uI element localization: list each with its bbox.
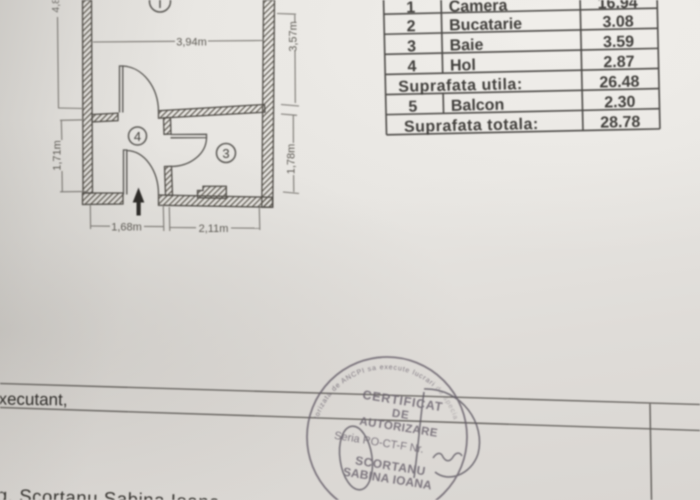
svg-text:1,71m: 1,71m <box>52 140 64 171</box>
svg-text:26.48: 26.48 <box>599 74 640 92</box>
svg-text:4: 4 <box>407 58 416 75</box>
svg-text:executant,: executant, <box>0 389 68 409</box>
svg-text:4,87m: 4,87m <box>50 0 62 13</box>
svg-text:Hol: Hol <box>450 57 476 75</box>
svg-text:28.78: 28.78 <box>600 114 641 132</box>
svg-text:2.87: 2.87 <box>603 54 635 72</box>
svg-text:3.59: 3.59 <box>603 34 635 52</box>
svg-text:1: 1 <box>406 0 415 17</box>
svg-text:3: 3 <box>407 38 416 55</box>
svg-text:Baie: Baie <box>449 37 483 55</box>
svg-text:2,11m: 2,11m <box>199 223 229 235</box>
svg-text:16.94: 16.94 <box>598 0 639 12</box>
svg-text:2: 2 <box>407 18 416 35</box>
svg-text:3,94m: 3,94m <box>176 37 207 49</box>
svg-text:Balcon: Balcon <box>451 97 505 115</box>
svg-text:Camera: Camera <box>449 0 508 16</box>
svg-text:1,68m: 1,68m <box>111 222 142 234</box>
svg-text:ng. Scortanu Sabina Ioana: ng. Scortanu Sabina Ioana <box>0 484 220 500</box>
svg-text:3: 3 <box>222 146 229 161</box>
svg-text:2.30: 2.30 <box>604 94 636 112</box>
svg-text:Suprafata utila:: Suprafata utila: <box>398 76 523 96</box>
svg-text:4: 4 <box>134 129 141 144</box>
svg-text:Suprafata totala:: Suprafata totala: <box>404 116 539 136</box>
svg-text:1,78m: 1,78m <box>286 144 298 175</box>
svg-text:3.08: 3.08 <box>602 13 634 31</box>
svg-text:Bucatarie: Bucatarie <box>449 16 522 35</box>
svg-text:3,57m: 3,57m <box>288 21 300 52</box>
svg-text:5: 5 <box>408 99 417 116</box>
